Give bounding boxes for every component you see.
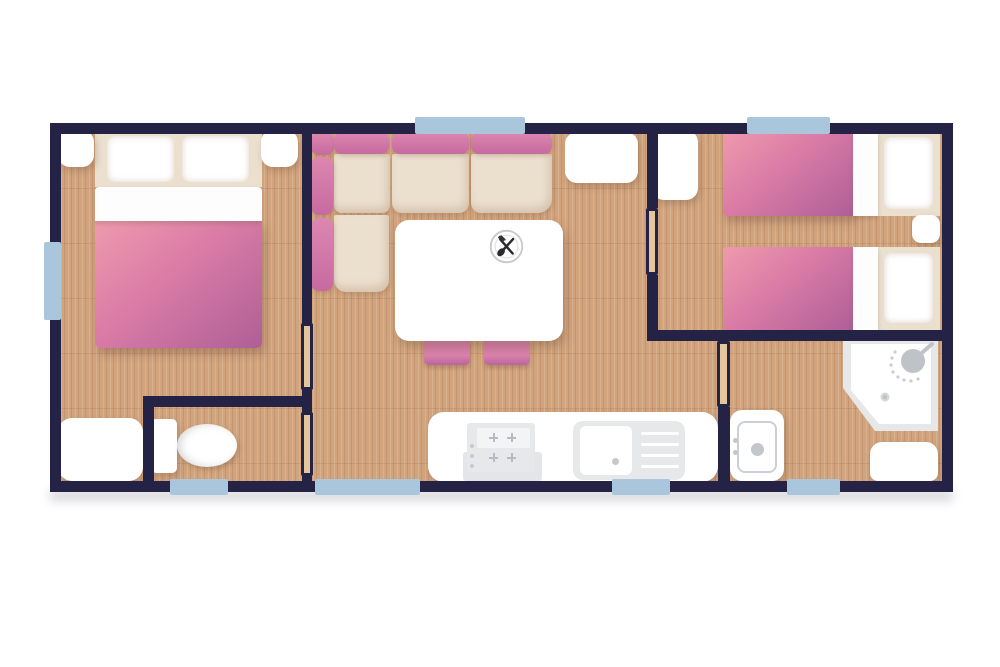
washbasin-tap — [733, 438, 738, 443]
nightstand — [912, 215, 940, 243]
wall-bedroom1 — [302, 476, 312, 482]
door-bedroom1 — [301, 323, 313, 390]
drainer-line — [641, 443, 679, 446]
wall-wc-left — [143, 407, 154, 481]
pillow — [107, 136, 174, 182]
door-wc — [301, 412, 313, 476]
sofa-seat-cushion — [392, 154, 469, 213]
cabinet — [870, 442, 938, 481]
wardrobe — [565, 132, 638, 183]
toilet-bowl — [177, 424, 237, 467]
sofa-back-cushion — [311, 157, 333, 215]
window — [315, 479, 420, 495]
wardrobe — [58, 418, 143, 481]
sink-basin — [580, 426, 632, 475]
sofa-back-cushion — [334, 132, 389, 154]
stove-top-panel — [477, 428, 530, 448]
drainer-line — [641, 432, 679, 435]
stove-knob — [470, 444, 474, 448]
stove-knob — [470, 454, 474, 458]
sofa-back-cushion — [311, 218, 333, 291]
nightstand — [261, 130, 298, 167]
pillow — [884, 137, 933, 209]
door-bedroom2 — [646, 208, 658, 275]
window — [787, 479, 840, 495]
sofa-corner-cushion — [311, 132, 334, 155]
toilet-tank — [151, 419, 177, 473]
wall-wc-top — [143, 396, 312, 407]
sofa-seat-cushion — [334, 154, 390, 213]
plate-with-cutlery-icon — [489, 229, 524, 264]
sofa-seat-cushion — [334, 215, 389, 292]
corner-shower — [843, 338, 938, 431]
bed-sheet — [853, 131, 878, 216]
twin-bed-duvet — [723, 247, 853, 330]
sofa-seat-cushion — [471, 154, 552, 213]
washbasin-faucet — [751, 443, 764, 456]
burner-knob-icon — [507, 433, 516, 442]
burner-knob-icon — [489, 453, 498, 462]
window — [747, 117, 830, 134]
sofa-back-cushion — [392, 132, 469, 154]
pillow — [182, 136, 249, 182]
wall-bedroom2 — [647, 134, 658, 208]
twin-bed-duvet — [723, 131, 853, 216]
bed-sheet — [95, 187, 262, 221]
chair — [424, 338, 470, 365]
double-bed-duvet — [95, 221, 262, 348]
burner-knob-icon — [507, 453, 516, 462]
window — [415, 117, 525, 134]
wardrobe — [652, 130, 698, 200]
sink-drain — [612, 458, 619, 465]
drainer-line — [641, 465, 679, 468]
stove-knob — [470, 464, 474, 468]
wall-outer-right — [942, 134, 953, 481]
drainer-line — [641, 454, 679, 457]
window — [170, 479, 228, 495]
window — [612, 479, 670, 495]
wall-bedroom1 — [302, 134, 312, 323]
wall-bedroom2-bottom — [647, 330, 942, 341]
nightstand — [58, 130, 94, 167]
pillow — [884, 253, 933, 323]
washbasin-tap — [733, 450, 738, 455]
window — [44, 242, 61, 320]
burner-knob-icon — [489, 433, 498, 442]
door-bathroom — [717, 341, 730, 407]
dining-table — [395, 220, 563, 341]
bed-sheet — [853, 247, 878, 330]
sofa-back-cushion — [471, 132, 552, 154]
wall-bathroom — [718, 407, 730, 481]
chair — [484, 338, 530, 365]
floor-plan — [0, 0, 1000, 667]
